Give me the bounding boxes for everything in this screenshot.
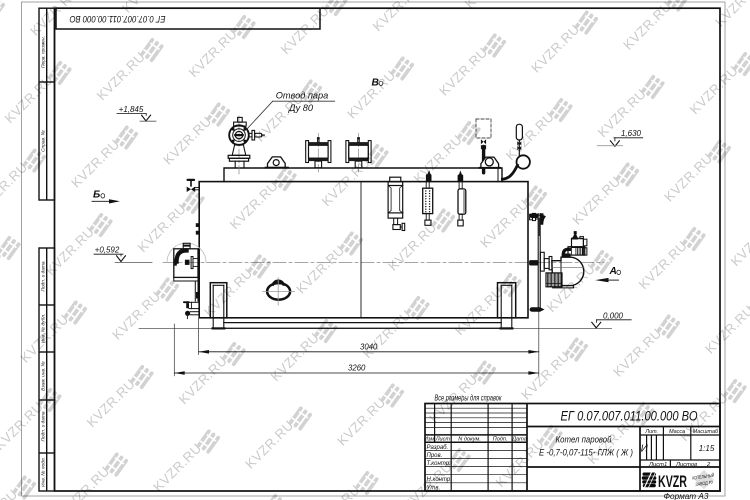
svg-text:KVZR.RU: KVZR.RU [702, 302, 750, 356]
svg-text:Пров.: Пров. [427, 453, 443, 459]
svg-text:0,000: 0,000 [603, 311, 624, 320]
svg-text:Формат А3: Формат А3 [664, 492, 709, 500]
svg-text:KVZR.RU: KVZR.RU [43, 224, 97, 278]
svg-text:KVZR.RU: KVZR.RU [493, 436, 547, 490]
svg-text:KVZR: KVZR [658, 473, 687, 491]
svg-text:KVZR.RU: KVZR.RU [186, 26, 240, 80]
svg-text:Перв. примен.: Перв. примен. [41, 36, 47, 68]
svg-text:KVZR.RU: KVZR.RU [360, 307, 414, 361]
svg-text:KVZR.RU: KVZR.RU [436, 44, 490, 98]
svg-text:Инв. № подл.: Инв. № подл. [41, 457, 47, 487]
svg-text:KVZR.RU: KVZR.RU [503, 109, 557, 163]
svg-text:+0,592: +0,592 [95, 246, 120, 255]
svg-text:Подп. и дата: Подп. и дата [41, 411, 47, 441]
svg-text:KVZR.RU: KVZR.RU [411, 132, 465, 186]
svg-text:KVZR.RU: KVZR.RU [227, 178, 281, 232]
svg-text:KVZR.RU: KVZR.RU [293, 242, 347, 296]
svg-text:Б: Б [93, 190, 100, 201]
svg-text:KVZR.RU: KVZR.RU [477, 196, 531, 250]
svg-text:Разраб.: Разраб. [427, 445, 449, 451]
svg-text:И: И [641, 444, 649, 455]
svg-text:KVZR.RU: KVZR.RU [712, 0, 750, 30]
svg-text:3260: 3260 [348, 364, 366, 373]
svg-text:1: 1 [664, 462, 667, 468]
svg-text:KVZR.RU: KVZR.RU [242, 417, 296, 471]
svg-text:KVZR.RU: KVZR.RU [84, 376, 138, 430]
svg-text:KVZR.RU: KVZR.RU [385, 219, 439, 273]
svg-text:KVZR.RU: KVZR.RU [610, 325, 664, 379]
svg-text:KVZR.RU: KVZR.RU [201, 265, 255, 319]
svg-text:Лист: Лист [435, 436, 451, 442]
svg-text:Лит.: Лит. [644, 429, 658, 435]
svg-text:Подп.: Подп. [493, 436, 508, 442]
svg-text:+1,845: +1,845 [119, 105, 144, 114]
svg-text:KVZR.RU: KVZR.RU [569, 173, 623, 227]
svg-text:А: А [609, 266, 617, 277]
svg-text:KVZR.RU: KVZR.RU [109, 288, 163, 342]
svg-text:KVZR.RU: KVZR.RU [687, 63, 741, 117]
svg-text:1,630: 1,630 [621, 129, 642, 138]
svg-text:KVZR.RU: KVZR.RU [176, 353, 230, 407]
svg-text:Взам. инв. №: Взам. инв. № [41, 361, 47, 391]
svg-text:KVZR.RU: KVZR.RU [150, 440, 204, 494]
svg-text:KVZR.RU: KVZR.RU [661, 150, 715, 204]
svg-text:ЕГ 0.07.007.011.00.000 ВО: ЕГ 0.07.007.011.00.000 ВО [69, 14, 166, 25]
svg-text:Листов: Листов [675, 462, 697, 468]
svg-text:KVZR.RU: KVZR.RU [278, 3, 332, 57]
svg-text:Справ. №: Справ. № [41, 130, 47, 152]
svg-text:KVZR.RU: KVZR.RU [68, 136, 122, 190]
svg-text:KVZR.RU: KVZR.RU [268, 330, 322, 384]
svg-text:KVZR.RU: KVZR.RU [94, 49, 148, 103]
svg-text:Изм.: Изм. [424, 436, 436, 442]
svg-text:N докум.: N докум. [458, 436, 481, 442]
svg-text:KVZR.RU: KVZR.RU [518, 348, 572, 402]
svg-text:1:15: 1:15 [699, 444, 715, 453]
svg-text:Дата: Дата [511, 436, 527, 442]
svg-text:Лист: Лист [648, 462, 664, 468]
svg-text:KVZR.RU: KVZR.RU [370, 0, 424, 34]
svg-text:KVZR.RU: KVZR.RU [0, 159, 31, 213]
svg-text:KVZR.RU: KVZR.RU [58, 463, 112, 500]
svg-text:KVZR.RU: KVZR.RU [528, 21, 582, 75]
svg-text:KVZR.RU: KVZR.RU [334, 394, 388, 448]
svg-text:KVZR.RU: KVZR.RU [160, 113, 214, 167]
svg-text:KVZR.RU: KVZR.RU [2, 72, 56, 126]
svg-text:KVZR.RU: KVZR.RU [728, 215, 750, 269]
svg-text:KVZR.RU: KVZR.RU [135, 201, 189, 255]
svg-text:KVZR.RU: KVZR.RU [344, 67, 398, 121]
svg-text:KVZR.RU: KVZR.RU [636, 238, 690, 292]
